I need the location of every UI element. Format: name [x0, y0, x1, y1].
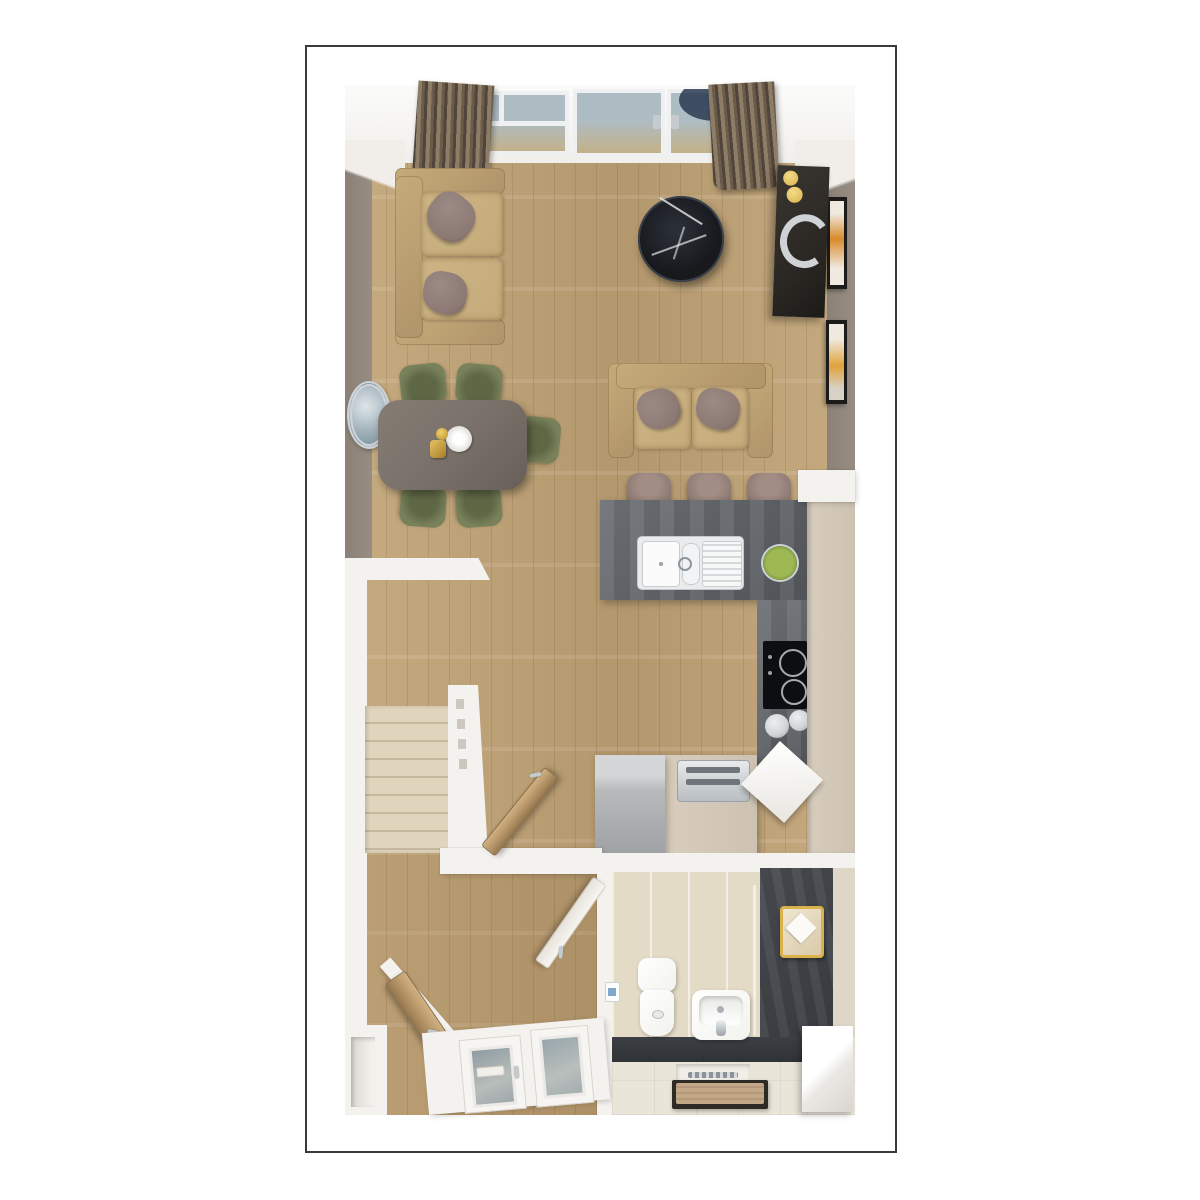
toaster-slot — [686, 767, 740, 773]
wall-art-lower — [826, 320, 847, 404]
tap — [678, 557, 692, 571]
towel — [785, 912, 816, 943]
kitchen-peninsula — [600, 500, 807, 600]
sink-drain — [659, 562, 663, 566]
banister-slot — [459, 759, 467, 769]
marble-vein — [659, 197, 702, 225]
basin-drain — [717, 1006, 724, 1013]
bathroom-wall-return — [833, 868, 855, 1037]
towel-shelf — [780, 906, 824, 958]
wall-hall-living — [440, 848, 602, 874]
sink-drainer — [702, 541, 742, 587]
decor-arc — [776, 210, 835, 272]
candle — [786, 186, 803, 203]
hob-ring — [779, 649, 807, 677]
candle — [783, 170, 799, 186]
hob-ring — [781, 679, 807, 705]
hob-control — [768, 671, 772, 675]
coffee-table — [638, 196, 724, 282]
curtain-right — [708, 81, 779, 190]
kitchen-sink — [638, 537, 743, 589]
wall-art-canvas — [829, 324, 844, 400]
door-handle — [529, 772, 542, 778]
toilet — [637, 958, 677, 1036]
shower-screen — [753, 885, 756, 1035]
window-mullion — [499, 95, 504, 121]
under-counter-appliance — [595, 755, 665, 857]
toilet-seat — [640, 990, 674, 1036]
table-decor-vase — [430, 440, 446, 458]
banister-slot — [457, 719, 465, 729]
door-handle — [653, 115, 661, 129]
toaster-slot — [686, 779, 740, 785]
toilet-roll — [608, 988, 616, 996]
storage-bench — [802, 1026, 853, 1112]
front-door-assembly — [422, 1017, 610, 1115]
wall-art-canvas — [830, 201, 844, 285]
dining-chair — [455, 485, 504, 528]
banister-slot — [456, 699, 464, 709]
sofa-top — [608, 363, 773, 462]
toaster — [677, 760, 750, 802]
front-door — [459, 1035, 527, 1114]
hob — [763, 641, 807, 709]
bath-mat-towel — [676, 1083, 764, 1104]
bathroom-ledge — [612, 1037, 807, 1062]
sofa-left — [395, 168, 505, 345]
pan — [765, 714, 789, 738]
bath-mat-tray — [672, 1080, 768, 1109]
base-cabinet — [665, 755, 757, 857]
front-door-handle — [514, 1066, 519, 1078]
toilet-flush-button — [652, 1010, 664, 1019]
sofa-back — [395, 176, 423, 338]
door-handle — [671, 115, 679, 129]
staircase — [365, 706, 450, 853]
fruit-bowl — [763, 546, 797, 580]
front-door-sidelight — [530, 1025, 595, 1108]
hall-alcove-wall — [345, 1025, 387, 1115]
table-decor-candle — [436, 428, 448, 440]
sidelight-glass — [539, 1033, 586, 1098]
floor-plan-sheet — [0, 0, 1200, 1200]
french-door-leaf — [573, 89, 665, 157]
hall-alcove — [351, 1037, 375, 1107]
hob-control — [768, 655, 772, 659]
dining-table — [378, 400, 527, 490]
table-decor-bowl — [446, 426, 472, 452]
dining-chair — [399, 485, 448, 528]
toilet-roll-holder — [605, 982, 620, 1002]
sofa-back — [616, 363, 766, 389]
wall-jog-right — [798, 470, 855, 502]
basin — [692, 990, 750, 1040]
shower-drain — [688, 1072, 738, 1078]
floor-plan — [345, 85, 855, 1115]
media-unit — [772, 165, 829, 318]
tall-cabinet-run — [807, 500, 855, 855]
banister-slot — [458, 739, 466, 749]
sink-bowl — [642, 541, 680, 587]
tap — [716, 1020, 726, 1036]
toilet-cistern — [638, 958, 676, 992]
